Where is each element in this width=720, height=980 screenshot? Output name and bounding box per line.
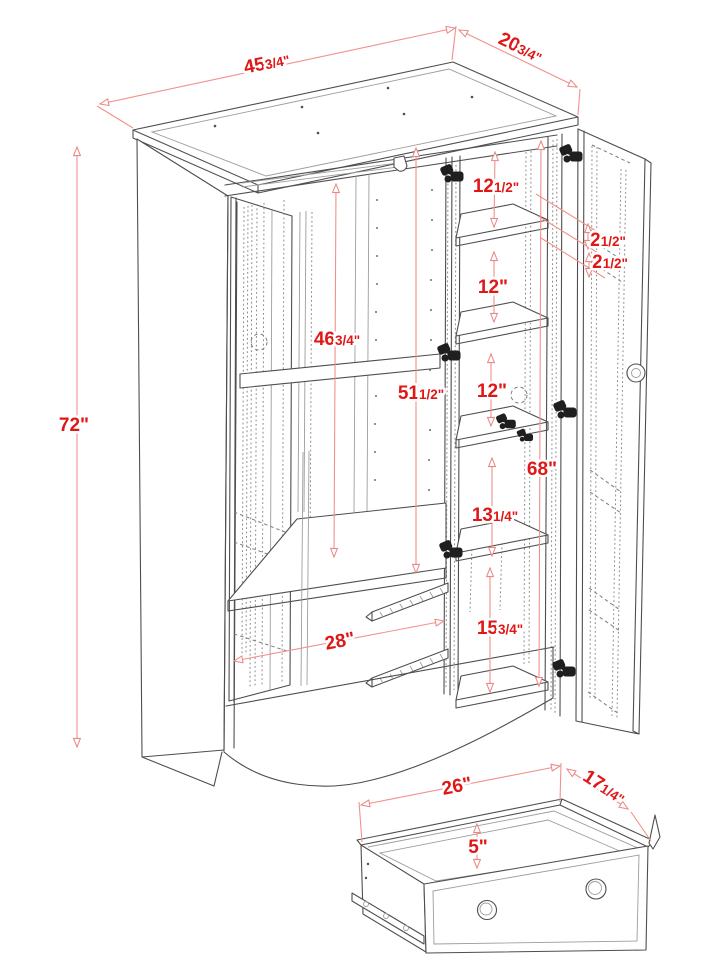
dim-shelf-space-4: 131/4" [472,505,518,526]
dim-drawer-depth: 171/4" [579,766,629,809]
dim-overall-height: 72" [59,415,89,436]
dim-center-interior-height: 511/2" [398,383,444,404]
dim-drawer-width: 26" [440,773,474,800]
dim-bottom-space: 153/4" [477,618,523,639]
loose-hinge-icon [517,429,533,442]
pin-hole-dots [374,189,433,521]
drawer-knob [478,901,497,920]
left-side-panel [137,139,228,786]
shelf [456,302,548,344]
dim-top-width: 453/4" [242,49,292,79]
dim-shelf-space-3: 12" [477,381,507,402]
hinge-icon [553,400,576,418]
left-compartment [228,206,446,686]
drawer-right-side [649,815,660,849]
drawer-box [352,799,660,953]
rod-bracket [394,156,407,171]
shelf [456,204,548,246]
hinge-icon [552,659,575,677]
drawer-knob [586,879,606,899]
dim-right-interior-height: 68" [527,459,557,480]
dim-hanging-interior-height: 463/4" [314,329,360,350]
dim-drawer-height: 5" [468,837,488,858]
bottom-panel [456,666,548,708]
shelf [456,519,548,561]
wardrobe-dimension-diagram: 453/4" 203/4" 72" 463/4" 511/2" 121/2" 1… [0,0,720,980]
right-door [576,129,651,734]
dim-door-gap-upper: 21/2" [590,230,626,251]
cabinet-drawing [133,62,651,786]
diagram-canvas: 453/4" 203/4" 72" 463/4" 511/2" 121/2" 1… [0,0,720,980]
dim-shelf-space-top: 121/2" [473,176,519,197]
left-door [229,197,292,702]
dim-top-depth: 203/4" [495,28,546,67]
dim-shelf-space-2: 12" [478,277,508,298]
dim-door-gap-lower: 21/2" [592,252,628,273]
dim-drawer-opening-width: 28" [323,628,357,654]
hidden-door-knob [251,334,267,350]
hinge-icon [559,144,582,162]
drawer-slides [366,583,448,687]
door-knob [626,364,645,382]
top-panel [133,62,578,193]
